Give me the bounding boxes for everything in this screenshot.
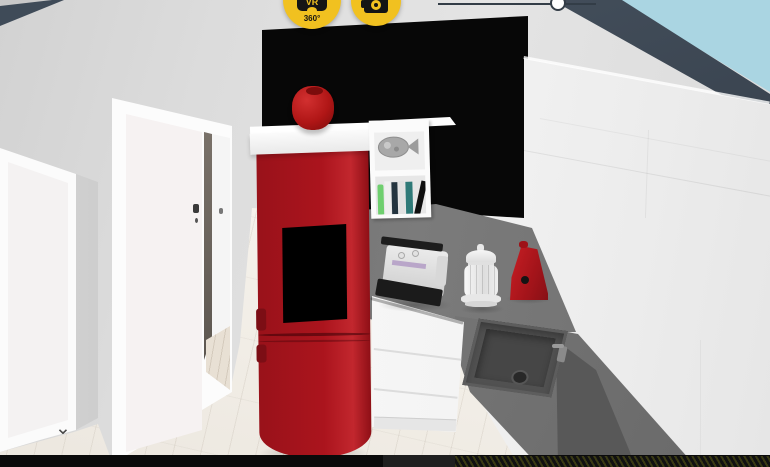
book — [384, 181, 391, 214]
cabinet-seam — [700, 340, 701, 460]
sewing-machine-dial — [412, 250, 419, 257]
stove-seam — [258, 332, 370, 336]
zoom-slider-track[interactable] — [438, 3, 596, 5]
lantern-body — [464, 265, 498, 297]
bottom-bar-segment — [383, 455, 455, 467]
vase-rim — [306, 87, 323, 95]
3d-viewport[interactable]: VR 360° ⌄ — [0, 0, 770, 467]
vr-360-label: 360° — [283, 14, 341, 23]
vr-goggles-icon: VR — [297, 0, 327, 11]
pellet-stove[interactable] — [256, 147, 371, 458]
book — [414, 180, 426, 214]
lantern-base — [465, 301, 497, 307]
fish-sculpture[interactable] — [374, 131, 421, 160]
stove-hinge — [256, 345, 266, 363]
shelf-compartment — [375, 175, 426, 214]
vr-360-button[interactable]: VR 360° — [283, 0, 341, 29]
stove-hinge — [256, 309, 266, 331]
book — [398, 181, 405, 214]
kitchen-sink[interactable] — [462, 319, 568, 398]
hallway-door-handle — [219, 208, 223, 214]
sink-basin — [474, 329, 555, 388]
sink-drain — [512, 371, 528, 384]
shelf-compartment — [374, 131, 425, 170]
kettle-detail — [521, 276, 529, 284]
sewing-machine-dial — [398, 252, 405, 259]
collapse-chevron-button[interactable]: ⌄ — [50, 418, 76, 442]
camera-lens — [371, 0, 381, 10]
stove-window — [282, 224, 347, 323]
bottom-bar-hatch — [455, 456, 770, 467]
cube-shelf[interactable] — [369, 119, 432, 219]
books[interactable] — [377, 179, 420, 214]
bottom-panel-bar[interactable] — [0, 455, 770, 467]
book — [405, 182, 413, 214]
door-handle — [193, 204, 199, 213]
green-bottle — [377, 184, 384, 214]
zoom-slider-knob[interactable] — [550, 0, 566, 11]
kettle-knob — [519, 241, 528, 248]
camera-icon — [364, 0, 388, 13]
chevron-down-icon: ⌄ — [55, 418, 71, 439]
book — [391, 182, 398, 214]
faucet-spout — [552, 344, 564, 348]
wall-top-edge-left — [0, 0, 80, 40]
door-keyhole — [195, 218, 198, 223]
stove-seam — [258, 339, 370, 342]
camera-button[interactable] — [351, 0, 401, 26]
